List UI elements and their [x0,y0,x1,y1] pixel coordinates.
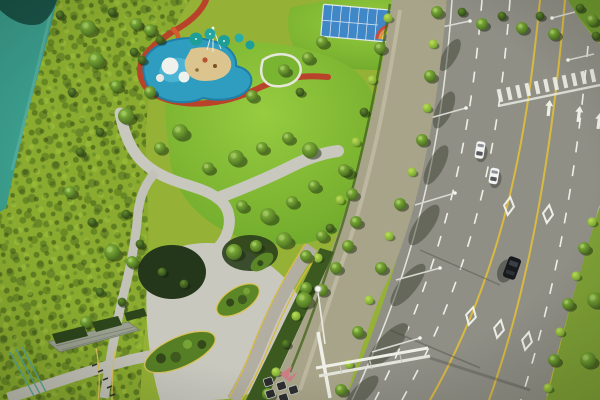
aerial-photo [0,0,600,400]
aerial-photo-stage [0,0,600,400]
vignette [0,0,600,400]
